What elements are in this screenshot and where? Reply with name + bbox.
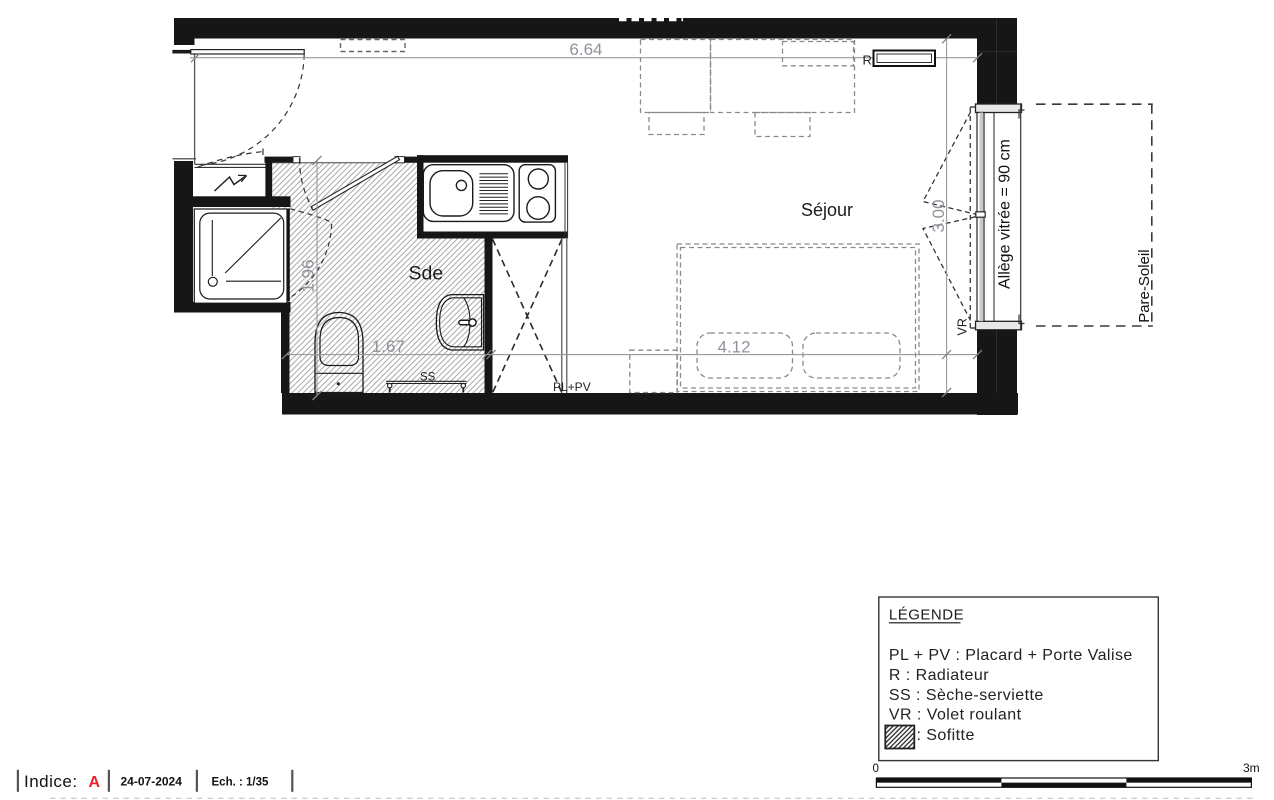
svg-text:VR : Volet roulant: VR : Volet roulant [889, 707, 1022, 724]
svg-text:R: R [863, 53, 872, 68]
svg-text:SS: SS [420, 372, 436, 384]
svg-text:R : Radiateur: R : Radiateur [889, 667, 989, 684]
svg-text:3m: 3m [1243, 761, 1260, 775]
svg-text:SS : Sèche-serviette: SS : Sèche-serviette [889, 687, 1044, 704]
svg-text:Séjour: Séjour [801, 200, 853, 220]
svg-text:1.67: 1.67 [372, 337, 405, 356]
svg-text:Indice:: Indice: [24, 772, 78, 791]
svg-text:6.64: 6.64 [569, 40, 602, 59]
svg-text:PL+PV: PL+PV [553, 380, 591, 394]
svg-text:A: A [89, 774, 101, 791]
svg-text:0: 0 [873, 763, 879, 775]
svg-text:1.96: 1.96 [298, 259, 317, 292]
svg-text:LÉGENDE: LÉGENDE [889, 607, 964, 624]
svg-text:24-07-2024: 24-07-2024 [121, 775, 183, 789]
svg-text:Pare-Soleil: Pare-Soleil [1136, 249, 1153, 322]
svg-text:PL + PV : Placard + Porte Vali: PL + PV : Placard + Porte Valise [889, 647, 1133, 664]
svg-text:VR: VR [956, 318, 970, 335]
svg-text:Ech. : 1/35: Ech. : 1/35 [212, 777, 269, 789]
svg-text:Sde: Sde [409, 263, 444, 285]
svg-text:3.00: 3.00 [929, 199, 948, 232]
svg-text:: Sofitte: : Sofitte [917, 727, 975, 744]
svg-text:4.12: 4.12 [718, 338, 751, 357]
svg-text:Allège vitrée = 90 cm: Allège vitrée = 90 cm [997, 139, 1014, 289]
